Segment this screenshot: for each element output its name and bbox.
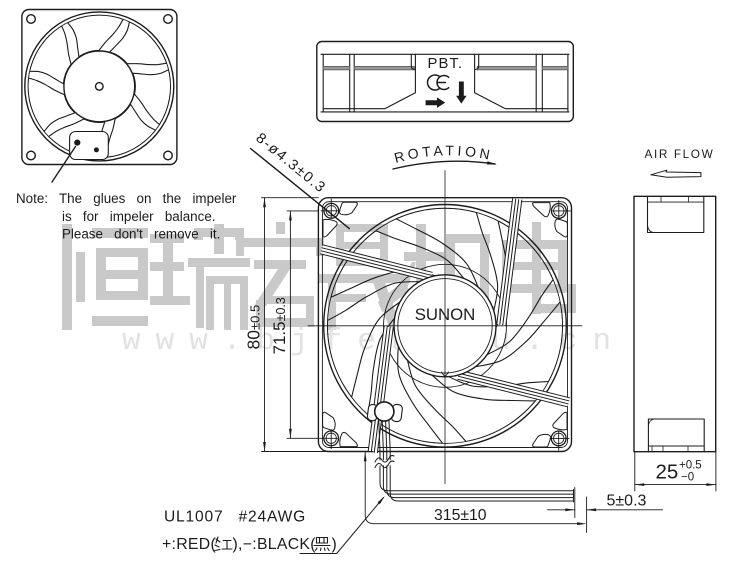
svg-text:PBT.: PBT. xyxy=(428,56,464,72)
svg-text:+0.5: +0.5 xyxy=(679,460,702,472)
svg-text:315±10: 315±10 xyxy=(434,507,487,524)
svg-text:AIR FLOW: AIR FLOW xyxy=(645,147,715,161)
svg-text:www.bjfengfu.cn: www.bjfengfu.cn xyxy=(122,324,626,359)
svg-text:is for impeler balance.: is for impeler balance. xyxy=(62,209,216,224)
svg-text:5±0.3: 5±0.3 xyxy=(607,493,647,510)
svg-text:Please don't remove it.: Please don't remove it. xyxy=(62,227,220,242)
svg-text:UL1007 #24AWG: UL1007 #24AWG xyxy=(164,509,306,526)
svg-text:),−:BLACK(: ),−:BLACK( xyxy=(233,536,317,553)
svg-text:25: 25 xyxy=(656,461,679,484)
svg-text:Note: The glues on the impele: Note: The glues on the impeler xyxy=(16,191,237,206)
svg-text:−0: −0 xyxy=(681,472,694,484)
svg-text:): ) xyxy=(332,536,337,553)
svg-text:+:RED(: +:RED( xyxy=(162,536,216,553)
